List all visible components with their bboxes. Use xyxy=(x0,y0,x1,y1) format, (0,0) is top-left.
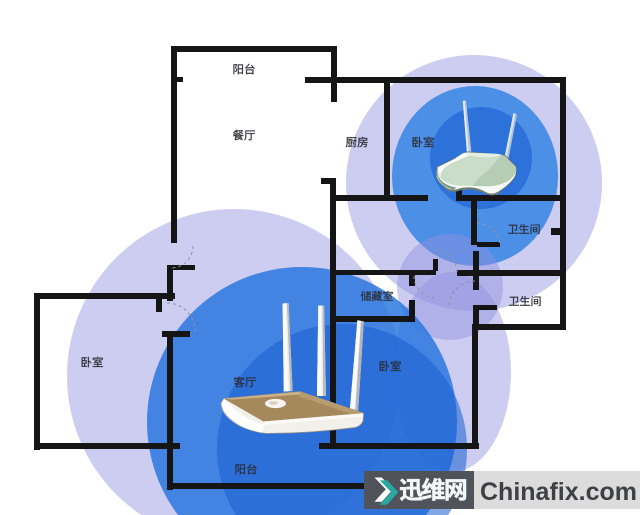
svg-text:Chinafix.com: Chinafix.com xyxy=(480,478,637,506)
